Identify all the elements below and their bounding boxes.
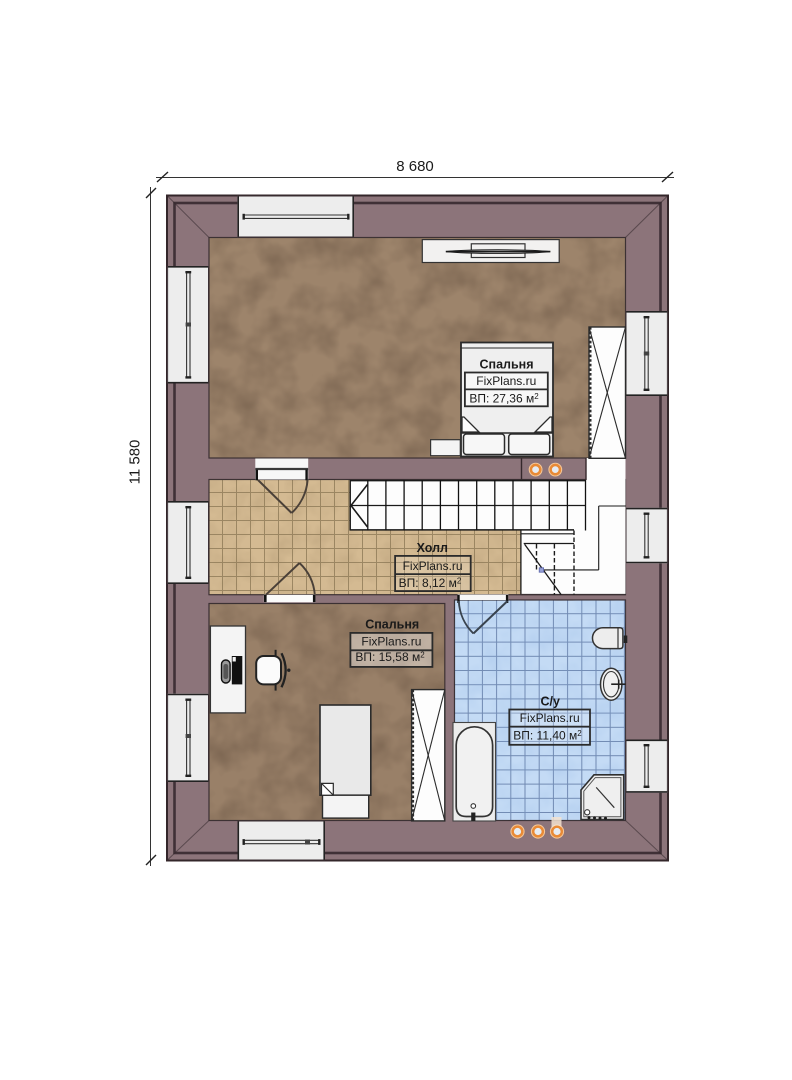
- svg-text:ВП: 8,12 м2: ВП: 8,12 м2: [399, 576, 462, 590]
- svg-text:С/у: С/у: [540, 695, 560, 709]
- svg-text:FixPlans.ru: FixPlans.ru: [403, 559, 463, 573]
- svg-text:FixPlans.ru: FixPlans.ru: [520, 711, 580, 725]
- svg-text:Холл: Холл: [417, 541, 448, 555]
- svg-text:ВП: 27,36 м2: ВП: 27,36 м2: [469, 392, 539, 406]
- svg-text:8 680: 8 680: [396, 158, 434, 175]
- svg-text:Спальня: Спальня: [480, 357, 534, 371]
- svg-text:ВП: 11,40 м2: ВП: 11,40 м2: [513, 729, 582, 743]
- svg-text:11 580: 11 580: [127, 440, 144, 485]
- svg-text:FixPlans.ru: FixPlans.ru: [361, 634, 421, 648]
- svg-text:Спальня: Спальня: [365, 617, 419, 631]
- svg-text:FixPlans.ru: FixPlans.ru: [476, 374, 536, 388]
- svg-text:ВП: 15,58 м2: ВП: 15,58 м2: [355, 650, 425, 664]
